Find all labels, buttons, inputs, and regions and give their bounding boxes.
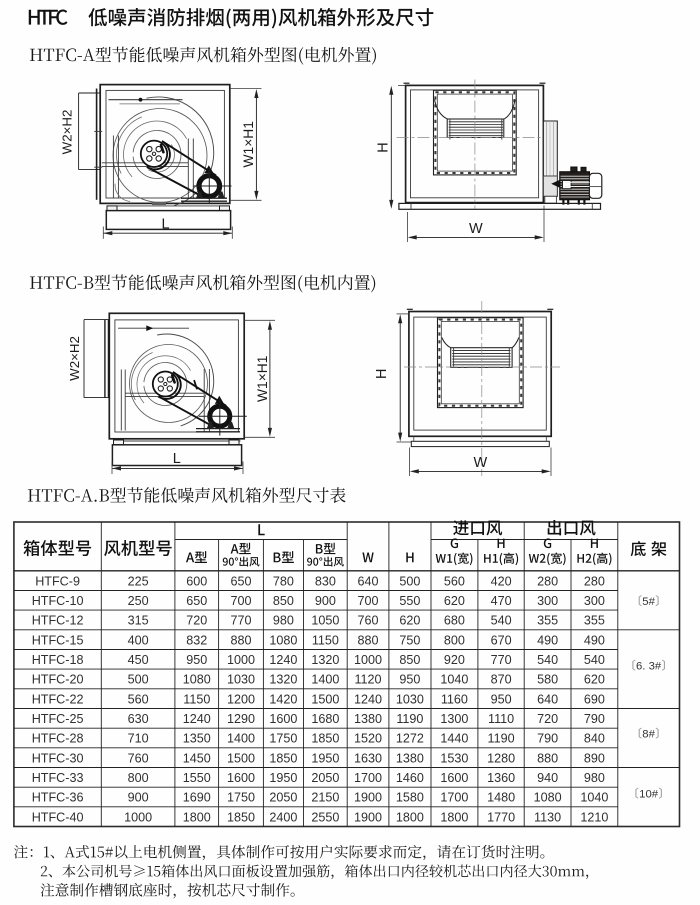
svg-text:1800: 1800 [440,810,468,824]
svg-text:1300: 1300 [440,712,468,726]
svg-text:980: 980 [273,614,294,628]
svg-text:950: 950 [399,673,420,687]
svg-text:6. 3#: 6. 3# [636,661,662,673]
svg-text:355: 355 [537,614,558,628]
svg-text:800: 800 [128,771,149,785]
svg-text:840: 840 [584,732,605,746]
svg-text:880: 880 [537,751,558,765]
svg-text:1680: 1680 [311,712,339,726]
svg-text:640: 640 [357,574,378,588]
svg-text:355: 355 [584,614,605,628]
svg-text:1400: 1400 [311,673,339,687]
svg-text:1850: 1850 [227,810,255,824]
svg-text:720: 720 [537,712,558,726]
svg-text:280: 280 [584,574,605,588]
svg-text:1750: 1750 [269,732,297,746]
svg-text:1000: 1000 [227,653,255,667]
svg-text:W1×H1: W1×H1 [241,121,256,167]
svg-text:HTFC-12: HTFC-12 [32,614,84,628]
svg-text:1550: 1550 [183,771,211,785]
svg-text:540: 540 [491,614,512,628]
svg-text:900: 900 [128,791,149,805]
svg-text:690: 690 [584,692,605,706]
svg-text:HTFC-28: HTFC-28 [32,732,84,746]
svg-text:1080: 1080 [183,673,211,687]
svg-text:880: 880 [357,633,378,647]
svg-text:832: 832 [186,633,207,647]
svg-text:700: 700 [230,594,251,608]
svg-text:1900: 1900 [354,810,382,824]
svg-text:1080: 1080 [269,633,297,647]
svg-text:1400: 1400 [227,732,255,746]
svg-text:W2×H2: W2×H2 [60,110,75,155]
svg-text:1480: 1480 [487,791,515,805]
svg-text:1130: 1130 [534,810,561,824]
svg-text:8#: 8# [642,729,655,741]
svg-text:870: 870 [491,673,512,687]
svg-text:1040: 1040 [580,791,608,805]
svg-text:HTFC-22: HTFC-22 [32,692,84,706]
svg-text:420: 420 [491,574,512,588]
svg-text:1210: 1210 [580,810,608,824]
svg-text:250: 250 [128,594,149,608]
svg-text:450: 450 [128,653,149,667]
svg-text:1380: 1380 [396,751,424,765]
svg-text:1700: 1700 [440,791,468,805]
svg-text:2400: 2400 [269,810,297,824]
svg-text:2050: 2050 [311,771,339,785]
svg-text:800: 800 [444,633,465,647]
svg-text:620: 620 [584,673,605,687]
svg-text:790: 790 [584,712,605,726]
svg-text:225: 225 [128,574,149,588]
svg-text:500: 500 [399,574,420,588]
svg-text:L: L [161,217,169,233]
svg-text:1770: 1770 [487,810,515,824]
svg-text:H: H [375,142,391,152]
svg-text:620: 620 [444,594,465,608]
svg-text:790: 790 [537,732,558,746]
svg-text:H: H [374,369,390,379]
svg-text:1800: 1800 [183,810,211,824]
svg-text:W2×H2: W2×H2 [67,336,82,381]
svg-text:1690: 1690 [183,791,211,805]
svg-text:1800: 1800 [396,810,424,824]
svg-text:680: 680 [444,614,465,628]
svg-text:1110: 1110 [488,712,514,726]
svg-text:770: 770 [230,614,251,628]
svg-text:500: 500 [128,673,149,687]
svg-text:HTFC-33: HTFC-33 [32,771,84,785]
svg-text:HTFC-20: HTFC-20 [32,673,84,687]
svg-text:280: 280 [537,574,558,588]
svg-text:760: 760 [357,614,378,628]
svg-text:560: 560 [128,692,149,706]
svg-text:580: 580 [537,673,558,687]
svg-text:1420: 1420 [269,692,297,706]
svg-text:2050: 2050 [269,791,297,805]
svg-text:HTFC-30: HTFC-30 [32,751,84,765]
svg-text:850: 850 [399,653,420,667]
svg-text:10#: 10# [639,789,659,801]
svg-text:1160: 1160 [441,692,468,706]
svg-text:1150: 1150 [183,692,210,706]
svg-text:750: 750 [399,633,420,647]
svg-text:1050: 1050 [311,614,339,628]
svg-text:1520: 1520 [354,732,382,746]
svg-text:1500: 1500 [311,692,339,706]
svg-text:W: W [469,221,483,237]
svg-text:1630: 1630 [354,751,382,765]
svg-text:1150: 1150 [312,633,339,647]
svg-text:540: 540 [584,653,605,667]
svg-text:1450: 1450 [183,751,211,765]
svg-text:1240: 1240 [354,692,382,706]
svg-text:1320: 1320 [269,673,297,687]
svg-text:HTFC-18: HTFC-18 [32,653,84,667]
svg-text:300: 300 [584,594,605,608]
svg-text:1850: 1850 [269,751,297,765]
svg-text:2150: 2150 [311,791,339,805]
svg-text:1240: 1240 [183,712,211,726]
svg-text:920: 920 [444,653,465,667]
svg-text:1190: 1190 [488,732,515,746]
svg-text:HTFC-9: HTFC-9 [35,574,80,588]
svg-text:980: 980 [584,771,605,785]
svg-text:1600: 1600 [269,712,297,726]
svg-text:1950: 1950 [269,771,297,785]
svg-text:1030: 1030 [396,692,424,706]
svg-text:600: 600 [186,574,207,588]
svg-text:HTFC-25: HTFC-25 [32,712,84,726]
svg-text:1600: 1600 [440,771,468,785]
svg-text:1120: 1120 [354,673,381,687]
svg-text:540: 540 [537,653,558,667]
svg-text:1000: 1000 [354,653,382,667]
svg-text:780: 780 [273,574,294,588]
svg-text:1320: 1320 [311,653,339,667]
svg-text:HTFC-10: HTFC-10 [32,594,84,608]
svg-text:5#: 5# [642,596,655,608]
svg-text:1850: 1850 [311,732,339,746]
svg-text:1280: 1280 [487,751,515,765]
svg-text:1580: 1580 [396,791,424,805]
svg-text:1900: 1900 [354,791,382,805]
svg-text:950: 950 [491,692,512,706]
svg-text:640: 640 [537,692,558,706]
svg-text:850: 850 [273,594,294,608]
svg-text:620: 620 [399,614,420,628]
svg-text:1380: 1380 [354,712,382,726]
svg-text:830: 830 [315,574,336,588]
svg-text:760: 760 [128,751,149,765]
svg-text:315: 315 [128,614,149,628]
svg-text:650: 650 [230,574,251,588]
svg-text:1460: 1460 [396,771,424,785]
svg-text:560: 560 [444,574,465,588]
svg-text:1240: 1240 [269,653,297,667]
svg-text:1750: 1750 [227,791,255,805]
svg-text:900: 900 [315,594,336,608]
svg-text:670: 670 [491,633,512,647]
svg-text:1950: 1950 [311,751,339,765]
svg-text:720: 720 [186,614,207,628]
svg-text:HTFC-40: HTFC-40 [32,810,84,824]
svg-text:490: 490 [537,633,558,647]
svg-text:1290: 1290 [227,712,255,726]
svg-text:650: 650 [186,594,207,608]
svg-text:1440: 1440 [440,732,468,746]
svg-text:1190: 1190 [396,712,423,726]
svg-text:1700: 1700 [354,771,382,785]
svg-text:1360: 1360 [487,771,515,785]
svg-text:880: 880 [230,633,251,647]
svg-text:L: L [173,451,181,467]
svg-text:HTFC-36: HTFC-36 [32,791,84,805]
svg-text:1200: 1200 [227,692,255,706]
svg-text:1000: 1000 [124,810,152,824]
svg-text:770: 770 [491,653,512,667]
svg-text:1530: 1530 [440,751,468,765]
svg-text:2550: 2550 [311,810,339,824]
svg-text:470: 470 [491,594,512,608]
svg-text:400: 400 [128,633,149,647]
svg-text:1272: 1272 [396,732,424,746]
svg-text:890: 890 [584,751,605,765]
svg-text:W: W [473,455,487,471]
svg-text:940: 940 [537,771,558,785]
svg-text:710: 710 [128,732,149,746]
svg-text:1030: 1030 [227,673,255,687]
svg-text:950: 950 [186,653,207,667]
svg-text:1080: 1080 [534,791,562,805]
svg-text:1600: 1600 [227,771,255,785]
svg-text:490: 490 [584,633,605,647]
svg-text:1350: 1350 [183,732,211,746]
svg-text:300: 300 [537,594,558,608]
svg-text:630: 630 [128,712,149,726]
svg-text:HTFC-15: HTFC-15 [32,633,84,647]
svg-text:700: 700 [357,594,378,608]
svg-text:1040: 1040 [440,673,468,687]
svg-text:550: 550 [399,594,420,608]
svg-text:1500: 1500 [227,751,255,765]
svg-text:W1×H1: W1×H1 [255,356,270,402]
